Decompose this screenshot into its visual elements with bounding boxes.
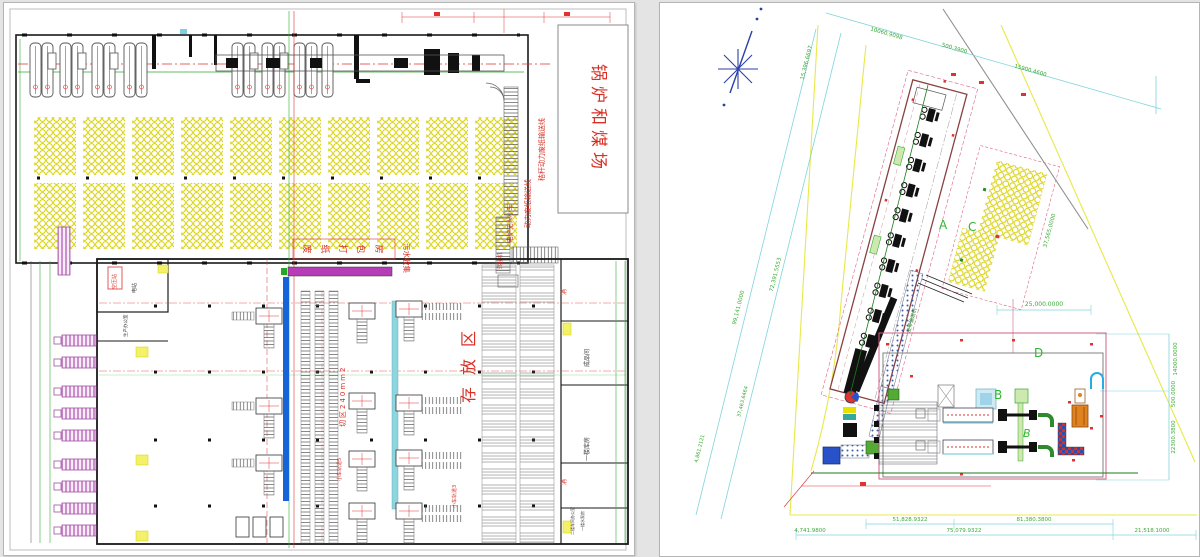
zone-label-d: D bbox=[1034, 346, 1043, 360]
dim-bottom-2: 81,380.3800 bbox=[1017, 517, 1052, 523]
boiler-coal-yard-box: 锅炉和煤场 bbox=[558, 25, 628, 213]
dim-width-mid: 25,000.0000 bbox=[1025, 301, 1063, 308]
site-boundary bbox=[790, 25, 1197, 515]
baler-head bbox=[281, 268, 287, 275]
label-cutting-area: 切区240mm2 bbox=[339, 366, 347, 427]
zone-label-b: B bbox=[994, 388, 1002, 402]
right-drawing-sheet: 99,141.0000 72,391.5553 15,396.6697 1006… bbox=[659, 2, 1200, 557]
label-hydrant-1: 消 bbox=[560, 289, 568, 295]
svg-text:打: 打 bbox=[337, 244, 349, 253]
svg-text:包: 包 bbox=[355, 244, 367, 253]
overhead-conveyor bbox=[216, 55, 504, 71]
dim-left-lower-2: 4,861.2121 bbox=[694, 434, 707, 463]
dim-right-2: 500.0000 bbox=[1171, 380, 1177, 407]
left-drawing-sheet: 秸秆动力废纸输送线 动力废纸输送线 电炉无人小车 转接机 锅炉和煤场 bbox=[3, 2, 635, 556]
compass-north-arrow bbox=[718, 8, 762, 107]
blue-chain-conveyor bbox=[283, 277, 289, 501]
valve-mark bbox=[180, 29, 187, 34]
baler-conveyor-magenta bbox=[288, 267, 392, 276]
label-agv-cart: 电炉无人小车 bbox=[505, 204, 514, 244]
dim-bottom-1: 51,828.9322 bbox=[893, 517, 928, 523]
label-power-conveyor: 动力废纸输送线 bbox=[523, 179, 532, 228]
label-sewage: 污水收集 bbox=[402, 243, 412, 273]
label-storage-area: 存放区 bbox=[459, 319, 478, 403]
dim-top-2: 500.3900 bbox=[941, 43, 968, 56]
zone-label-b-italic: B bbox=[1023, 427, 1031, 440]
svg-text:房: 房 bbox=[373, 244, 385, 253]
dim-top-3: 15900.4600 bbox=[1013, 64, 1047, 79]
pool-marker bbox=[1091, 373, 1103, 389]
label-warehouse: 一楼库房 bbox=[583, 437, 591, 461]
label-straw-conveyor: 秸秆动力废纸输送线 bbox=[537, 118, 546, 181]
conveyor-curve bbox=[486, 83, 504, 101]
label-second-floor-office: 二楼车间办公室 bbox=[569, 507, 575, 535]
svg-text:纸: 纸 bbox=[319, 244, 331, 253]
left-plan-svg: 秸秆动力废纸输送线 动力废纸输送线 电炉无人小车 转接机 锅炉和煤场 bbox=[4, 3, 634, 555]
label-production-office: 生产办公室 bbox=[122, 314, 129, 337]
dim-left-lower: 37,463.6464 bbox=[736, 386, 750, 418]
label-hydrant-2: 消 bbox=[560, 479, 568, 485]
label-cart-rail-3: 小车轨道3 bbox=[451, 485, 458, 508]
bale-storage-grid bbox=[34, 117, 517, 249]
truck-parking-column bbox=[54, 227, 96, 536]
zone-c-material-yard bbox=[942, 146, 1060, 310]
dim-right-3: 22300.3800 bbox=[1171, 420, 1177, 454]
svg-text:废: 废 bbox=[301, 244, 313, 253]
cad-screenshot-root: { "palette": { "annotation_red": "#d9302… bbox=[0, 0, 1200, 557]
zone-label-c: C bbox=[968, 220, 976, 234]
right-plan-svg: 99,141.0000 72,391.5553 15,396.6697 1006… bbox=[660, 3, 1199, 556]
dim-bottom-3: 4,741.9800 bbox=[794, 528, 826, 534]
dim-left-top: 15,396.6697 bbox=[800, 45, 814, 81]
label-finished-goods: 成品间 bbox=[583, 349, 591, 367]
dim-right-1: 14000.0000 bbox=[1173, 342, 1179, 376]
zone-label-a: A bbox=[939, 218, 948, 232]
label-air-compressor: 空压站 bbox=[111, 274, 118, 289]
dim-bottom-5: 21,518.1000 bbox=[1135, 528, 1170, 534]
pulper-machine-row bbox=[30, 43, 333, 97]
dim-bottom-4: 75,079.9322 bbox=[947, 528, 982, 534]
dim-top-1: 10060.9098 bbox=[869, 27, 903, 42]
label-power-station: 电站 bbox=[131, 283, 138, 293]
label-boiler-coal-yard: 锅炉和煤场 bbox=[588, 64, 608, 174]
dim-c-side: 37,565.0000 bbox=[1043, 213, 1058, 249]
top-hall bbox=[16, 35, 552, 263]
label-pump-room: 一楼水泵房 bbox=[579, 511, 585, 531]
